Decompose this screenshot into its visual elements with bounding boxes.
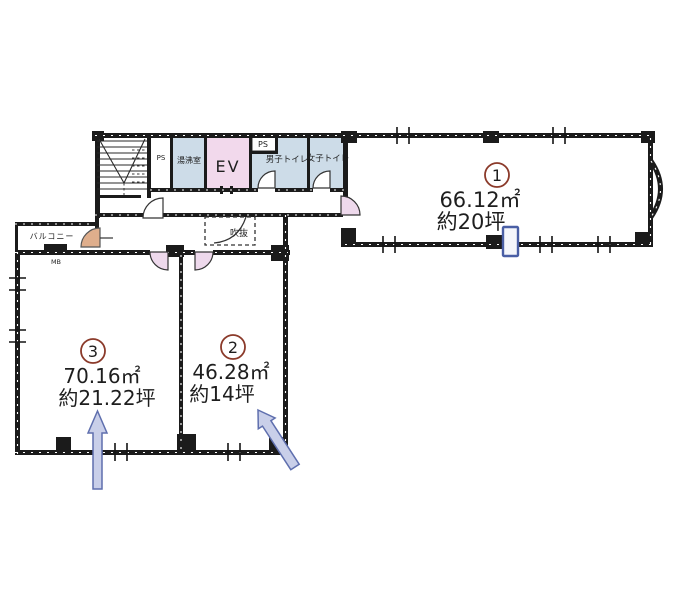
room1-entrance-door <box>341 196 360 215</box>
room1-area-sqm: 66.12㎡ <box>439 188 520 212</box>
balcony-label: バルコニー <box>30 232 75 241</box>
room3-area-sqm: 70.16㎡ <box>63 364 140 388</box>
room3-label: 3 70.16㎡ 約21.22坪 <box>58 339 155 410</box>
room2-door <box>195 252 213 270</box>
room2-area-sqm: 46.28㎡ <box>192 360 269 384</box>
room1-label: 1 66.12㎡ 約20坪 <box>437 163 521 234</box>
pipe-space-label: PS <box>258 140 268 149</box>
room2-entry-arrow <box>258 410 299 470</box>
mens-toilet-label: 男子トイレ <box>266 155 309 165</box>
room3-number: 3 <box>88 342 98 361</box>
womens-toilet-label: 女子トイレ <box>307 153 350 164</box>
atrium-void-label: 吹抜 <box>230 227 248 239</box>
floor-plan: 1 66.12㎡ 約20坪 2 46.28㎡ 約14坪 3 70.16㎡ 約21… <box>0 0 681 597</box>
floor-plan-svg: 1 66.12㎡ 約20坪 2 46.28㎡ 約14坪 3 70.16㎡ 約21… <box>0 0 681 597</box>
kitchenette-label: 湯沸室 <box>177 155 201 165</box>
room3-area-tsubo: 約21.22坪 <box>58 386 155 410</box>
room1-number: 1 <box>492 166 502 185</box>
meter-box-label: MB <box>51 258 61 266</box>
room2-label: 2 46.28㎡ 約14坪 <box>189 335 269 406</box>
balcony-door <box>81 228 100 247</box>
room1-area-tsubo: 約20坪 <box>437 210 506 234</box>
staircase <box>97 139 147 195</box>
elevator-label: EV <box>215 157 240 176</box>
stair-door <box>143 198 163 218</box>
room3-door <box>150 252 168 270</box>
room2-number: 2 <box>228 338 238 357</box>
room2-area-tsubo: 約14坪 <box>189 382 254 406</box>
pipe-space-side-label: PS <box>157 154 166 162</box>
